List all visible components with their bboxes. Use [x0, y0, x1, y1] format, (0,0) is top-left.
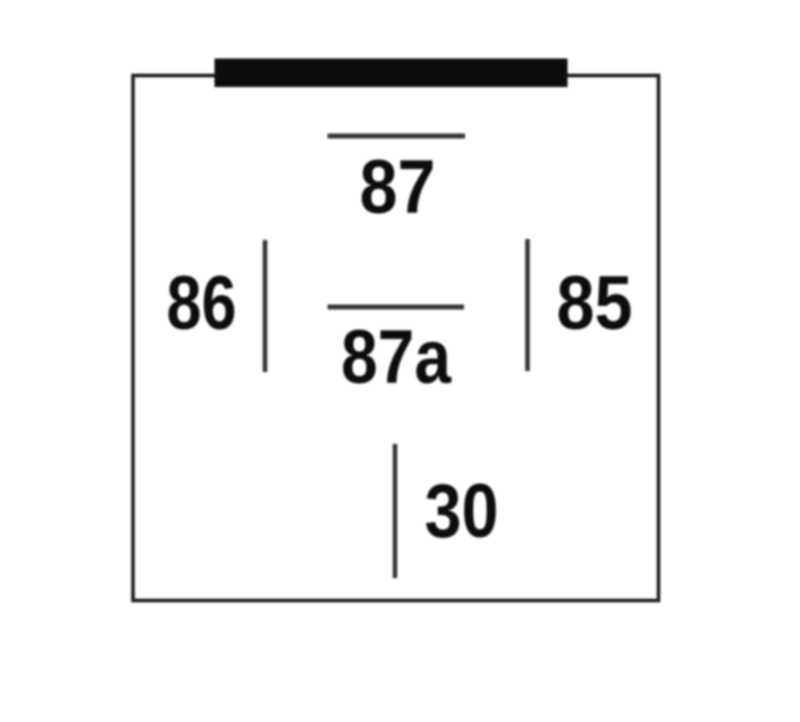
- svg-text:30: 30: [425, 469, 499, 554]
- svg-text:87a: 87a: [341, 315, 452, 400]
- svg-text:87: 87: [360, 145, 436, 230]
- svg-text:86: 86: [167, 261, 237, 346]
- svg-text:85: 85: [557, 261, 633, 346]
